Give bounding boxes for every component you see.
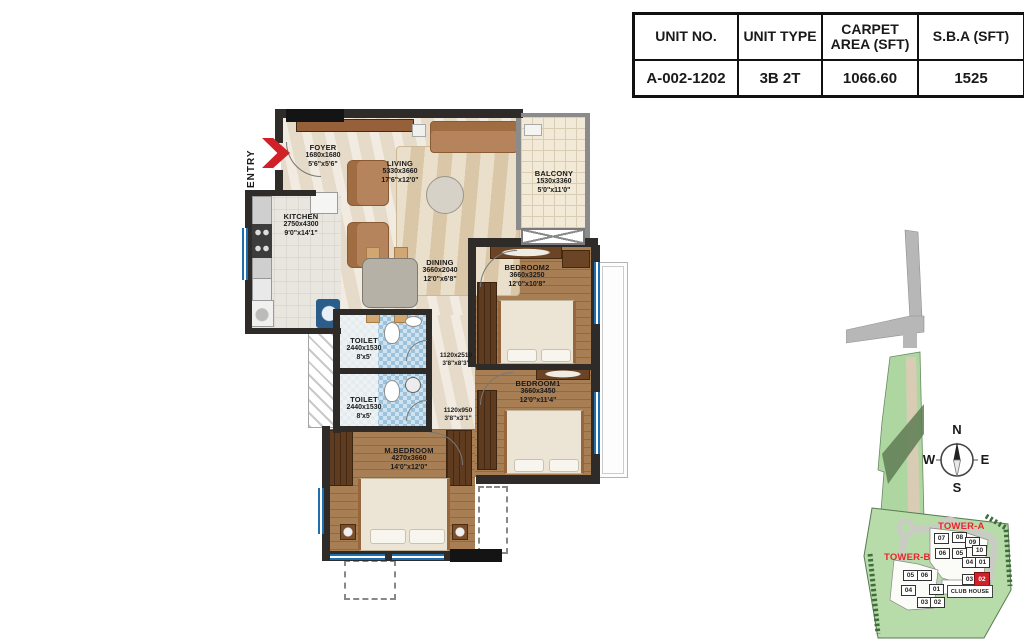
tower-b-label: TOWER-B: [884, 552, 931, 563]
wall: [286, 109, 344, 122]
compass-icon: N S W E: [918, 416, 996, 496]
tower-a-unit: 01: [975, 557, 990, 568]
room-dim-mm: 2750x4300: [268, 221, 334, 230]
room-dim-ft: 5'0"x11'0": [522, 187, 586, 196]
room-name: TOILET: [342, 395, 386, 404]
passage-dim-mm: 1120x950: [432, 407, 484, 415]
balcony-partition: [516, 118, 521, 230]
toilet-sink: [405, 316, 422, 327]
room-name: BEDROOM2: [492, 263, 562, 272]
room-label-bedroom1: BEDROOM1 3660x3450 12'0"x11'4": [503, 379, 573, 406]
passage-label-1: 1120x2510 3'8"x8'3": [430, 352, 482, 368]
value-carpet: 1066.60: [822, 60, 918, 96]
col-header-unit-no: UNIT NO.: [634, 14, 738, 60]
geyser-dial: [405, 377, 421, 393]
room-dim-ft: 9'0"x14'1": [268, 230, 334, 239]
room-name: FOYER: [288, 143, 358, 152]
pillow: [507, 349, 537, 362]
toilet-wc: [384, 380, 400, 402]
pillow: [541, 349, 571, 362]
room-label-balcony: BALCONY 1530x3360 5'0"x11'0": [522, 169, 586, 196]
room-dim-mm: 4270x3660: [372, 455, 446, 464]
passage-label-2: 1120x950 3'8"x3'1": [432, 407, 484, 423]
tower-a-unit-highlighted: 02: [974, 572, 990, 586]
room-name: M.BEDROOM: [372, 446, 446, 455]
room-label-foyer: FOYER 1680x1680 5'6"x5'6": [288, 143, 358, 170]
wall: [333, 368, 432, 374]
room-dim-ft: 12'0"x6'8": [408, 276, 472, 285]
room-name: TOILET: [342, 336, 386, 345]
room-dim-mm: 3660x3250: [492, 272, 562, 281]
dashed-duct-bottom: [344, 560, 396, 600]
value-unit-type: 3B 2T: [738, 60, 822, 96]
tower-b-unit: 01: [929, 584, 944, 595]
room-label-toilet2: TOILET 2440x1530 8'x5': [342, 395, 386, 422]
bedside-cabinet: [562, 250, 590, 268]
col-header-unit-type: UNIT TYPE: [738, 14, 822, 60]
value-unit-no: A-002-1202: [634, 60, 738, 96]
wall: [333, 426, 432, 432]
room-dim-mm: 3660x3450: [503, 388, 573, 397]
club-house-label: CLUB HOUSE: [947, 585, 993, 598]
wall: [450, 549, 502, 562]
room-label-toilet1: TOILET 2440x1530 8'x5': [342, 336, 386, 363]
room-label-kitchen: KITCHEN 2750x4300 9'0"x14'1": [268, 212, 334, 239]
tower-b-unit: 02: [930, 597, 945, 608]
pillow: [370, 529, 406, 544]
pillow: [549, 459, 579, 472]
pillow: [409, 529, 445, 544]
room-label-bedroom2: BEDROOM2 3660x3250 12'0"x10'8": [492, 263, 562, 290]
passage-dim-mm: 1120x2510: [430, 352, 482, 360]
room-label-dining: DINING 3660x2040 12'0"x6'8": [408, 258, 472, 285]
washing-machine: [250, 300, 274, 327]
side-ledge: [598, 262, 628, 478]
road-stub: [903, 330, 917, 348]
tower-b-unit: 04: [901, 585, 916, 596]
wall: [476, 475, 600, 484]
bed-bedroom1: [504, 410, 584, 474]
tower-a-unit: 06: [935, 548, 950, 559]
col-header-sba: S.B.A (SFT): [918, 14, 1024, 60]
side-ledge-inner: [602, 266, 624, 474]
tower-b-unit: 05: [903, 570, 918, 581]
pillow: [514, 459, 544, 472]
unit-info-table: UNIT NO. UNIT TYPE CARPET AREA (SFT) S.B…: [632, 12, 1024, 98]
mbedroom-window: [330, 554, 385, 560]
tower-b-unit: 06: [917, 570, 932, 581]
tower-a-unit: 10: [972, 545, 987, 556]
kitchen-window: [242, 228, 248, 280]
entry-label: ENTRY: [246, 134, 257, 188]
balcony-ac-unit: [524, 124, 542, 136]
main-road-vertical: [905, 230, 922, 320]
room-name: BALCONY: [522, 169, 586, 178]
mbedroom-side-window: [318, 488, 324, 534]
room-dim-ft: 12'0"x10'8": [492, 281, 562, 290]
bedside-table: [340, 524, 356, 540]
tower-a-label: TOWER-A: [938, 521, 985, 532]
room-dim-ft: 12'0"x11'4": [503, 397, 573, 406]
balcony-railing: [521, 228, 585, 245]
roundabout: [899, 521, 913, 535]
compass-e: E: [981, 452, 990, 467]
room-dim-mm: 2440x1530: [342, 345, 386, 354]
room-dim-mm: 2440x1530: [342, 404, 386, 413]
bedroom1-window: [594, 392, 600, 454]
wall: [246, 190, 316, 196]
room-dim-ft: 5'6"x5'6": [288, 161, 358, 170]
wall: [275, 109, 283, 143]
room-name: LIVING: [362, 159, 438, 168]
room-label-living: LIVING 5330x3660 17'6"x12'0": [362, 159, 438, 186]
bedroom2-window: [594, 262, 600, 324]
kitchen-sink: [252, 278, 272, 302]
room-dim-mm: 1530x3360: [522, 178, 586, 187]
wall: [245, 328, 341, 334]
value-sba: 1525: [918, 60, 1024, 96]
balcony-wall: [521, 113, 590, 117]
wall: [476, 364, 592, 370]
room-dim-mm: 3660x2040: [408, 267, 472, 276]
passage-dim-ft: 3'8"x8'3": [430, 360, 482, 368]
room-name: DINING: [408, 258, 472, 267]
room-dim-ft: 17'6"x12'0": [362, 177, 438, 186]
wardrobe: [327, 430, 353, 486]
room-dim-ft: 8'x5': [342, 413, 386, 422]
col-header-carpet: CARPET AREA (SFT): [822, 14, 918, 60]
bed-mbedroom: [358, 478, 450, 551]
toilet-wc: [384, 322, 400, 344]
room-label-mbedroom: M.BEDROOM 4270x3660 14'0"x12'0": [372, 446, 446, 473]
shaft-hatch: [308, 332, 336, 428]
room-dim-ft: 8'x5': [342, 354, 386, 363]
passage-dim-ft: 3'8"x3'1": [432, 415, 484, 423]
compass-n: N: [952, 422, 961, 437]
side-table: [412, 124, 426, 137]
wall: [333, 309, 432, 315]
mbedroom-window: [392, 554, 444, 560]
room-dim-ft: 14'0"x12'0": [372, 464, 446, 473]
compass-s: S: [953, 480, 962, 495]
tower-a-unit: 07: [934, 533, 949, 544]
compass-w: W: [923, 452, 936, 467]
room-name: BEDROOM1: [503, 379, 573, 388]
dashed-open-area: [478, 486, 508, 554]
room-dim-mm: 5330x3660: [362, 168, 438, 177]
room-dim-mm: 1680x1680: [288, 152, 358, 161]
bedside-table: [452, 524, 468, 540]
room-name: KITCHEN: [268, 212, 334, 221]
bed-bedroom2: [498, 300, 576, 364]
floorplan-page: UNIT NO. UNIT TYPE CARPET AREA (SFT) S.B…: [0, 0, 1024, 640]
sofa: [430, 121, 518, 153]
